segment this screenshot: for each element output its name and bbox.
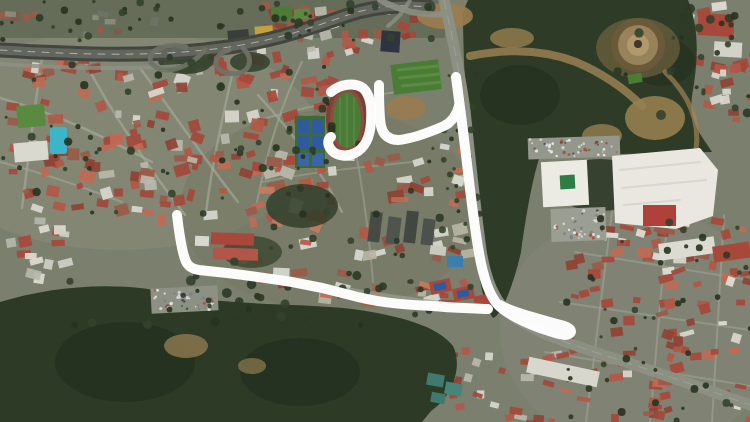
school-building	[211, 232, 254, 245]
dirt-field	[386, 96, 426, 120]
sports-field-west	[16, 104, 46, 128]
pool-olympic	[447, 256, 463, 267]
store-logo	[560, 175, 576, 190]
satellite-map	[0, 0, 750, 422]
map-screenshot	[0, 0, 750, 422]
map-terrain-layer	[0, 0, 750, 422]
